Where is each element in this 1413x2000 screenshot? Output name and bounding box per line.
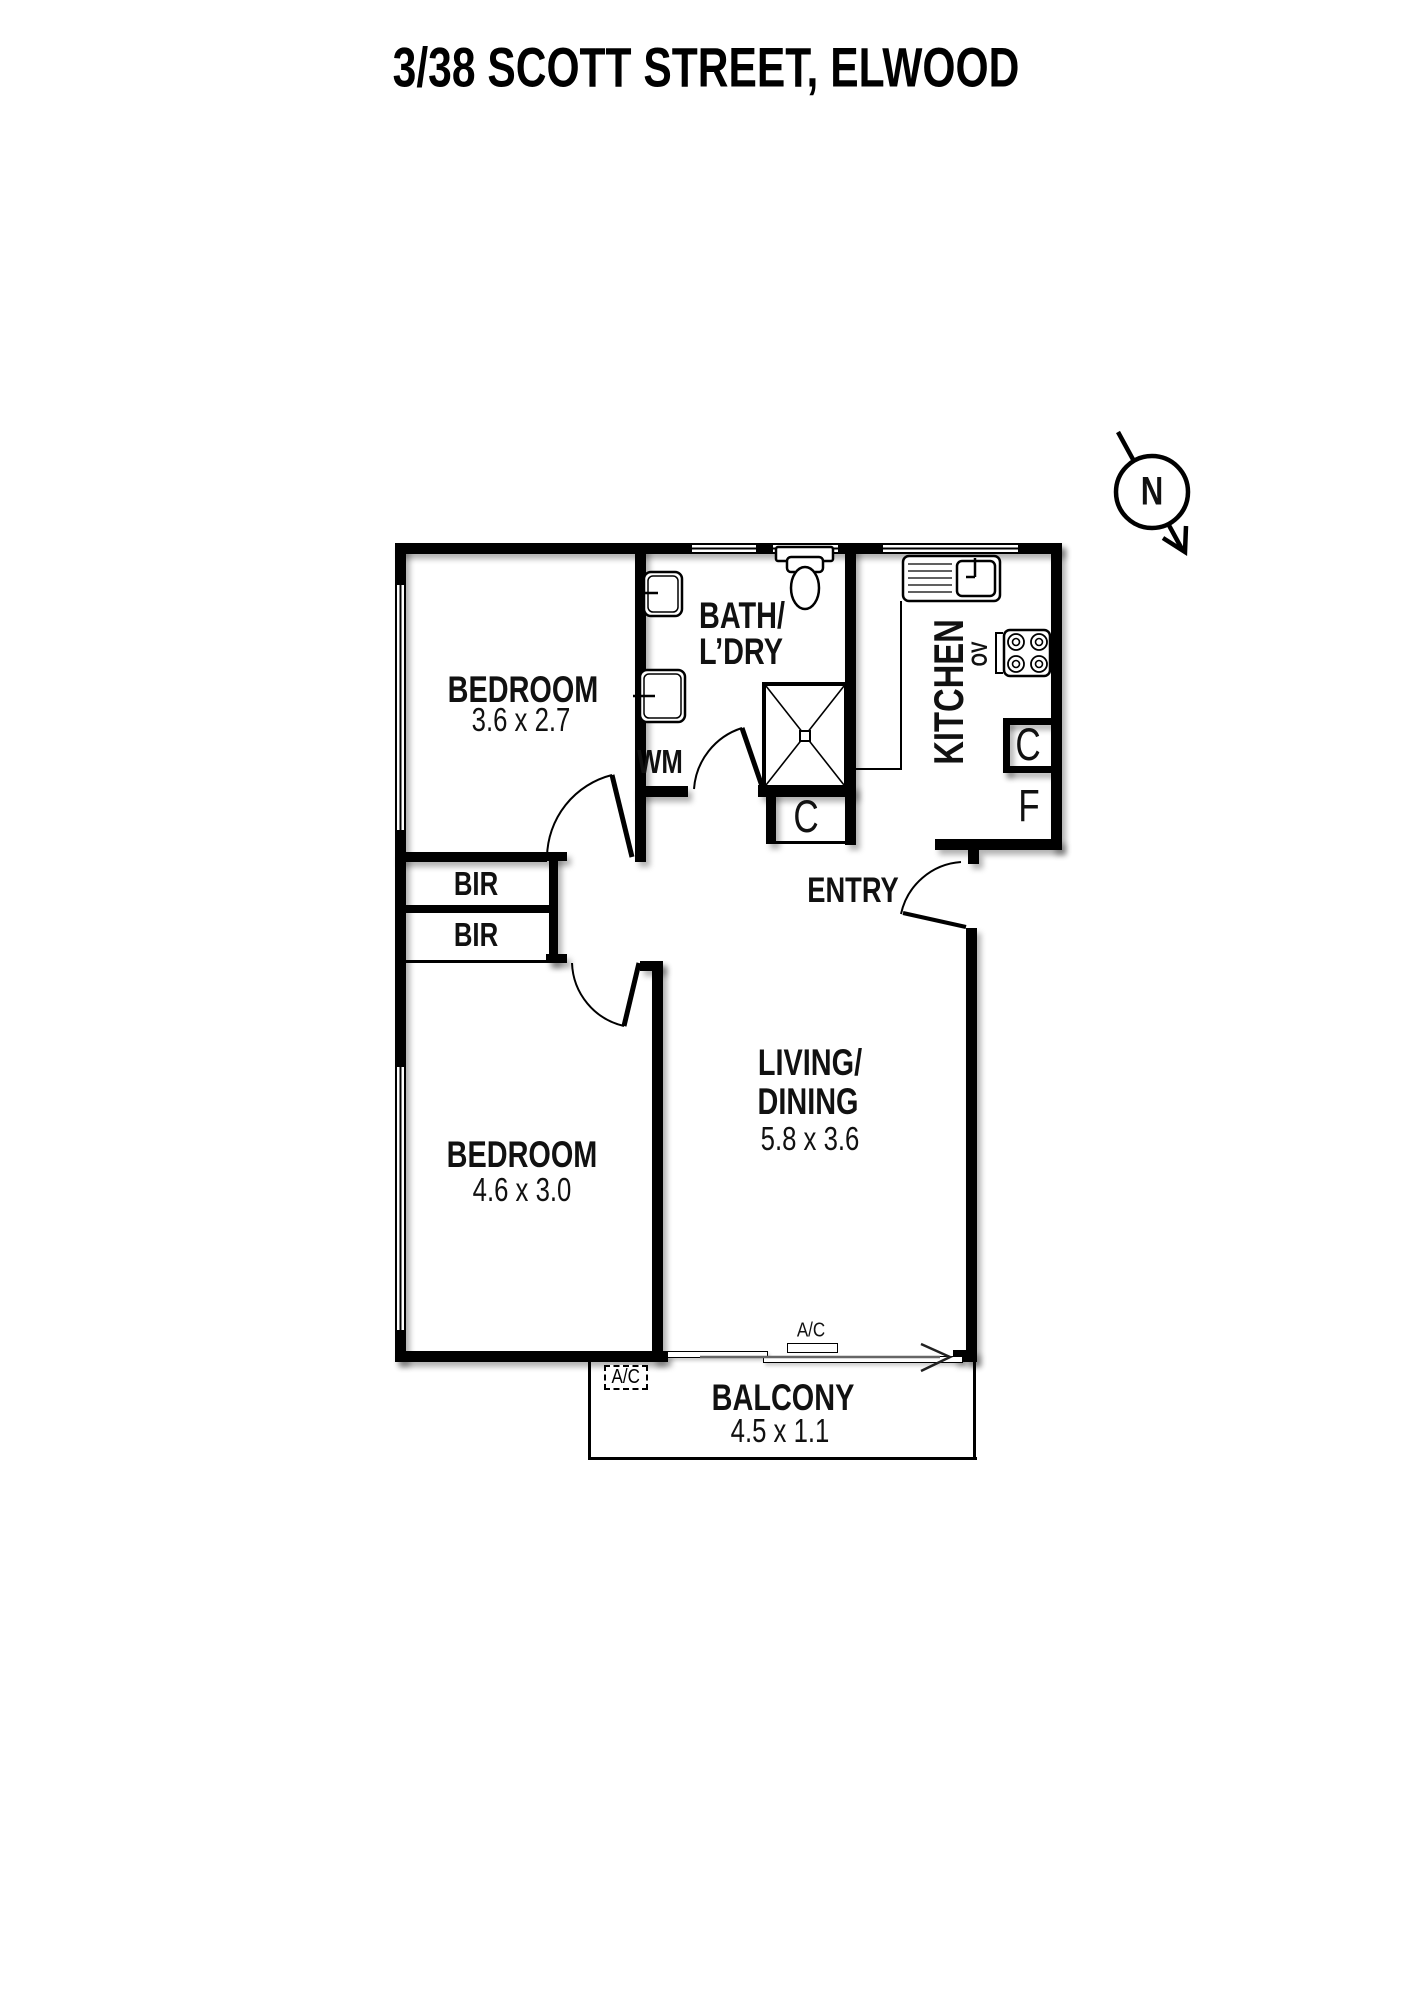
entry-door [901,862,966,927]
wall-bir-post [549,852,558,963]
wall-bedroom2-living-divider [652,961,663,1362]
kitchen-label: KITCHEN [925,619,973,765]
wall-bath-cupboard-post [766,790,776,844]
ac-unit-balcony-icon: A/C [604,1365,648,1390]
bir1-top-line [406,854,547,857]
fridge-label: F [1018,780,1039,832]
oven-label: OV [967,642,993,667]
wall-entry-door-stub [968,850,979,864]
wall-bedroom2-south [395,1351,668,1362]
living-label-line2: DINING [757,1081,858,1123]
kitchen-counter-line [852,601,901,769]
shower-icon [764,684,846,787]
washing-machine-label: WM [637,743,683,781]
cooktop-icon [1004,630,1050,676]
entry-label: ENTRY [807,871,899,911]
balcony-dims: 4.5 x 1.1 [731,1412,830,1450]
ac-unit-icon [787,1343,838,1353]
ac-door-label: A/C [797,1320,825,1343]
wall-bir-post-cap-bottom [546,954,567,963]
page-title: 3/38 SCOTT STREET, ELWOOD [393,35,1020,100]
compass-north-label: N [1141,470,1164,515]
wall-kitchen-cupboard-left [1003,718,1010,773]
bedroom1-dims: 3.6 x 2.7 [472,701,571,739]
window-bedroom2-west [395,1067,406,1330]
bath-door [694,728,763,789]
sliding-door-panel-left [667,1351,768,1358]
living-dims: 5.8 x 3.6 [761,1120,860,1158]
window-bath-north-2 [773,543,838,554]
floor-plan: 3/38 SCOTT STREET, ELWOOD A/C [0,0,1413,2000]
wall-kitchen-south [935,839,1062,850]
balcony-edge-south [588,1457,977,1460]
window-bath-north-1 [692,543,756,554]
bir-middle-line [406,905,550,913]
bedroom2-dims: 4.6 x 3.0 [473,1171,572,1209]
bir2-label: BIR [454,916,498,954]
bath-label-line2: L’DRY [699,631,783,673]
wall-kitchen-east [1051,543,1062,850]
window-kitchen-north [883,543,1018,554]
bir1-label: BIR [454,865,498,903]
kitchen-sink-icon [903,556,1000,601]
wall-bath-south [635,786,688,797]
window-bedroom1-west [395,585,406,830]
balcony-edge-west [588,1362,591,1460]
bedroom1-door [547,775,632,857]
living-label-line1: LIVING/ [758,1042,862,1084]
wall-living-east [966,928,977,1362]
kitchen-cupboard-label: C [1015,719,1040,771]
oven-front-line [996,633,1003,673]
bedroom2-label: BEDROOM [447,1134,598,1176]
wall-bath-east [845,543,856,845]
bir2-bottom-line [406,960,547,963]
ac-balcony-label: A/C [612,1366,640,1389]
balcony-edge-east [973,1362,976,1460]
bath-cupboard-label: C [793,791,818,843]
sliding-door-panel-right [763,1356,963,1363]
wall-bir-post-cap-top [546,852,567,861]
wall-bedroom1-bath-divider [635,543,646,862]
bedroom2-door [572,963,639,1026]
